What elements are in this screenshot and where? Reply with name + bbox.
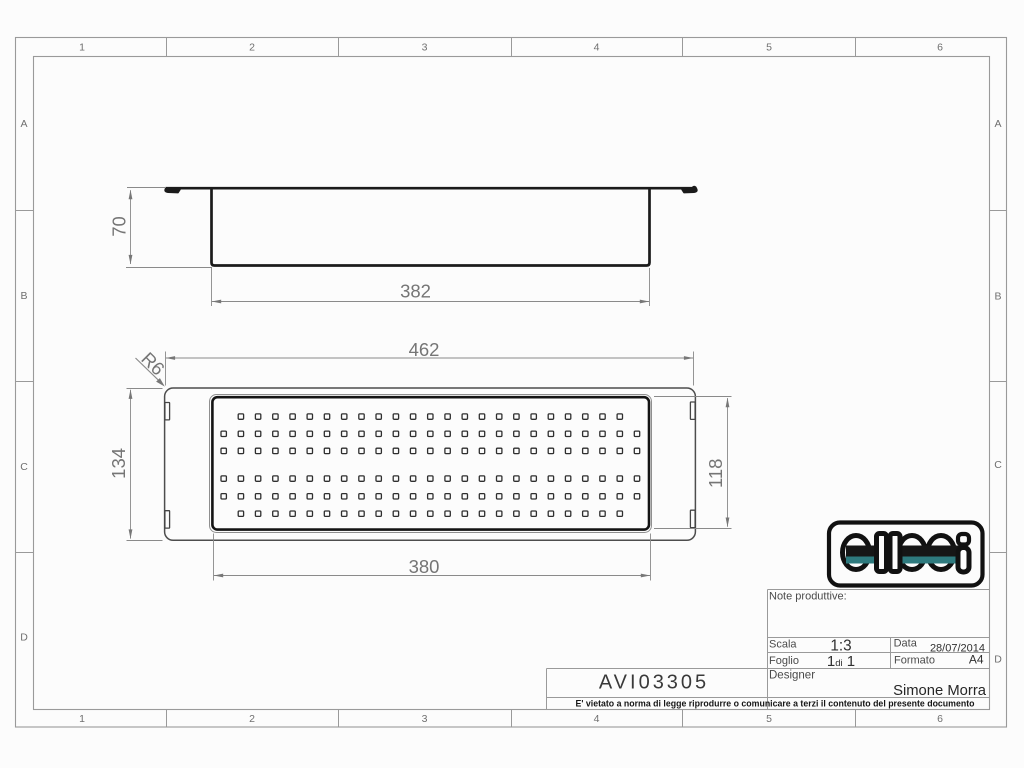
svg-text:Note produttive:: Note produttive: bbox=[769, 591, 847, 603]
svg-text:382: 382 bbox=[400, 280, 431, 301]
svg-text:1: 1 bbox=[79, 42, 85, 54]
svg-text:C: C bbox=[994, 459, 1002, 471]
svg-text:4: 4 bbox=[594, 713, 600, 725]
svg-text:380: 380 bbox=[409, 556, 440, 577]
svg-text:6: 6 bbox=[937, 713, 943, 725]
svg-text:Foglio: Foglio bbox=[769, 655, 799, 667]
svg-text:462: 462 bbox=[409, 339, 440, 360]
svg-text:Data: Data bbox=[894, 637, 918, 649]
svg-text:4: 4 bbox=[594, 42, 600, 54]
svg-text:5: 5 bbox=[766, 713, 772, 725]
svg-text:B: B bbox=[20, 290, 27, 302]
svg-text:2: 2 bbox=[249, 42, 255, 54]
svg-text:Formato: Formato bbox=[894, 655, 935, 667]
svg-text:5: 5 bbox=[766, 42, 772, 54]
svg-text:2: 2 bbox=[249, 713, 255, 725]
svg-text:134: 134 bbox=[108, 448, 129, 479]
svg-text:D: D bbox=[20, 632, 28, 644]
svg-text:A4: A4 bbox=[969, 653, 984, 667]
svg-text:118: 118 bbox=[705, 459, 726, 489]
svg-text:C: C bbox=[20, 461, 28, 473]
svg-text:A: A bbox=[20, 118, 27, 130]
svg-text:Designer: Designer bbox=[769, 670, 815, 682]
svg-text:E' vietato a norma di legge ri: E' vietato a norma di legge riprodurre o… bbox=[576, 698, 975, 709]
svg-text:A: A bbox=[994, 118, 1001, 130]
svg-text:70: 70 bbox=[109, 216, 130, 237]
svg-text:3: 3 bbox=[422, 42, 428, 54]
svg-text:3: 3 bbox=[422, 713, 428, 725]
svg-text:Scala: Scala bbox=[769, 639, 797, 651]
svg-text:6: 6 bbox=[937, 42, 943, 54]
svg-text:B: B bbox=[994, 291, 1001, 303]
svg-text:Simone Morra: Simone Morra bbox=[893, 683, 987, 699]
svg-text:D: D bbox=[994, 654, 1002, 666]
svg-text:1:3: 1:3 bbox=[830, 637, 851, 654]
svg-text:1: 1 bbox=[79, 713, 85, 725]
svg-text:AVI03305: AVI03305 bbox=[599, 672, 709, 694]
